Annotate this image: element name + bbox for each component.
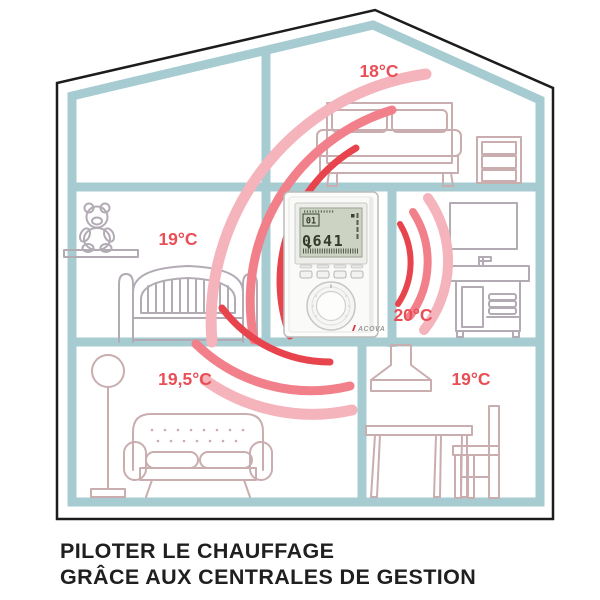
wave-arc-inner (398, 224, 411, 304)
dining-table-illustration (366, 426, 472, 497)
mirror-illustration (450, 203, 517, 249)
dresser-illustration (477, 137, 521, 183)
thermostat-dial-knob (307, 282, 355, 330)
brand-label: ACOVA (357, 326, 385, 333)
house-heating-diagram: 01 0641 (0, 0, 600, 600)
lcd-day: 01 (306, 217, 316, 227)
temp-label-bathroom: 20°C (393, 305, 432, 325)
extractor-hood-illustration (371, 345, 431, 391)
caption-line-1: PILOTER LE CHAUFFAGE (60, 539, 334, 563)
sofa-buttons (151, 429, 245, 443)
kids-bed-illustration (119, 266, 257, 342)
sofa-illustration (124, 414, 272, 497)
temp-label-dining-room: 19°C (451, 369, 490, 389)
poster-canvas: 01 0641 (0, 0, 600, 600)
caption-line-2: GRÂCE AUX CENTRALES DE GESTION (60, 564, 476, 589)
temp-label-living-room: 19,5°C (158, 369, 212, 389)
bathroom-vanity-illustration (447, 257, 529, 337)
floor-lamp-illustration (91, 355, 125, 497)
temp-label-kids-room: 19°C (158, 229, 197, 249)
thermostat-device: 01 0641 (284, 192, 385, 337)
temp-label-bedroom: 18°C (359, 61, 398, 81)
dining-chair-illustration (453, 406, 499, 498)
caption: PILOTER LE CHAUFFAGE GRÂCE AUX CENTRALES… (60, 539, 476, 589)
